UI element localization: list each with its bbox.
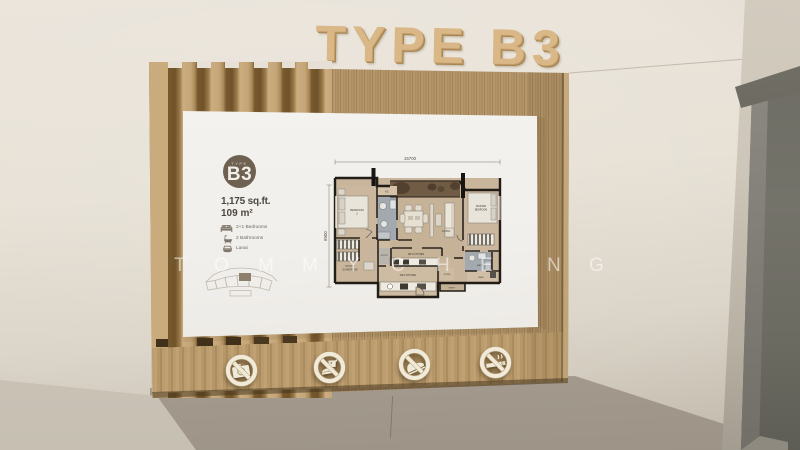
svg-text:BEDROOM: BEDROOM [350,208,363,212]
svg-text:BEDROOM: BEDROOM [475,208,487,211]
svg-text:DRY KITCHEN: DRY KITCHEN [408,253,424,256]
svg-text:15700: 15700 [404,156,417,161]
svg-text:UTILITY: UTILITY [381,255,389,257]
svg-text:LIVING: LIVING [442,229,451,233]
svg-text:8900: 8900 [323,231,328,241]
svg-text:BATH: BATH [477,264,483,267]
svg-text:ENTRY: ENTRY [449,288,456,290]
svg-text:WET KITCHEN: WET KITCHEN [400,274,417,277]
svg-text:GUARDROBE: GUARDROBE [342,268,358,271]
svg-text:STORE: STORE [444,274,452,276]
svg-text:YARD: YARD [478,276,484,279]
svg-text:AC: AC [385,190,389,194]
